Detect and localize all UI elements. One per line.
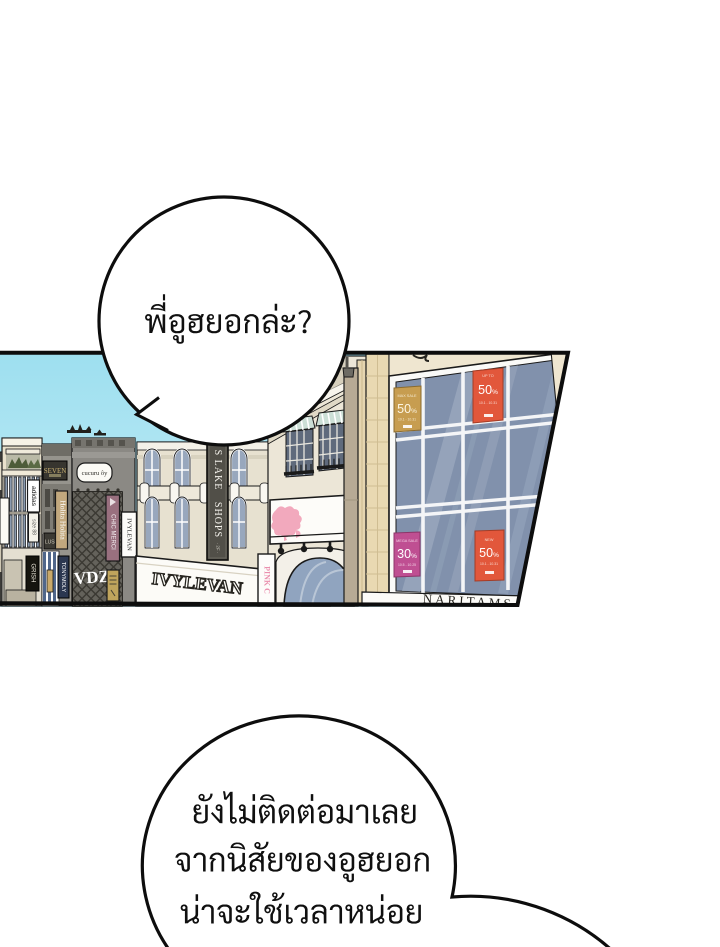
svg-text:10.1 - 10.31: 10.1 - 10.31: [398, 418, 416, 422]
svg-text:UP TO: UP TO: [482, 374, 493, 378]
svg-text:PINK C: PINK C: [263, 566, 272, 594]
svg-text:cucuru ôy: cucuru ôy: [82, 470, 109, 477]
svg-text:size 88: size 88: [31, 519, 37, 535]
svg-text:IVYLEVAN: IVYLEVAN: [126, 518, 133, 551]
svg-text:CHIC MERCI: CHIC MERCI: [109, 514, 115, 550]
svg-text:Holita Holita: Holita Holita: [58, 500, 67, 540]
svg-text:SEVEN: SEVEN: [44, 467, 67, 475]
svg-text:SHOPS: SHOPS: [212, 502, 223, 538]
svg-text:10.1 - 10.31: 10.1 - 10.31: [479, 401, 497, 405]
svg-text:MAX SALE: MAX SALE: [398, 394, 417, 398]
svg-text:10.5 - 10.25: 10.5 - 10.25: [398, 563, 416, 567]
svg-text:NEW: NEW: [485, 538, 494, 542]
svg-text:10.1 - 10.31: 10.1 - 10.31: [480, 562, 498, 566]
svg-text:GRISH: GRISH: [29, 563, 35, 582]
svg-text:VDZ: VDZ: [73, 567, 110, 588]
svg-text:TONYMOLY: TONYMOLY: [60, 562, 66, 593]
svg-text:adidas: adidas: [30, 486, 37, 507]
svg-text:· 2F ·: · 2F ·: [215, 543, 220, 554]
svg-text:MEGA SALE: MEGA SALE: [396, 539, 418, 543]
svg-text:S LAKE: S LAKE: [212, 450, 223, 491]
